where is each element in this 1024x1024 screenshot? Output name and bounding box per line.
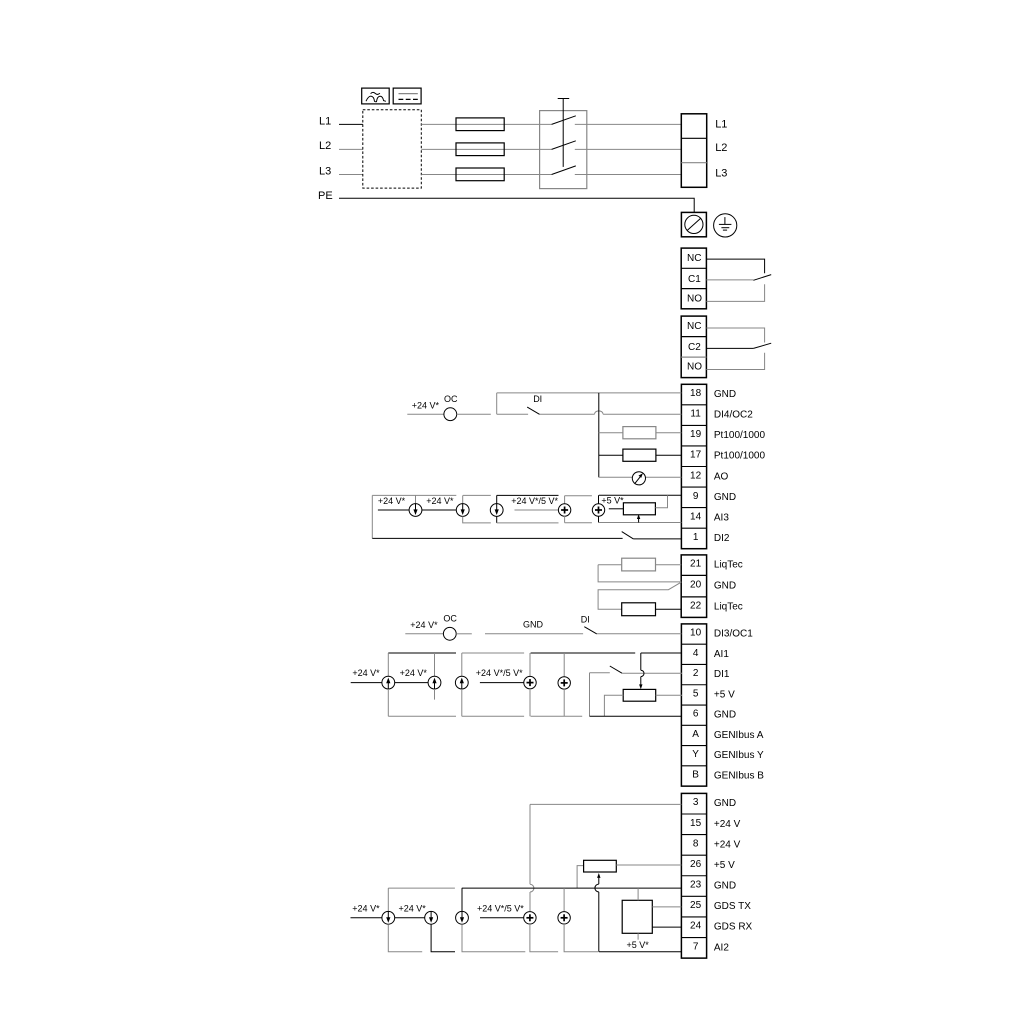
svg-text:11: 11 — [690, 409, 701, 420]
svg-text:14: 14 — [690, 511, 702, 522]
svg-text:1: 1 — [693, 532, 699, 543]
svg-text:19: 19 — [690, 429, 702, 440]
svg-text:GND: GND — [523, 620, 544, 630]
svg-text:Y: Y — [692, 749, 699, 760]
svg-text:4: 4 — [693, 648, 699, 659]
svg-text:17: 17 — [690, 450, 702, 461]
svg-text:3: 3 — [693, 797, 699, 808]
svg-text:+24 V*: +24 V* — [352, 668, 380, 678]
svg-text:7: 7 — [693, 941, 699, 952]
svg-text:26: 26 — [690, 859, 702, 870]
svg-text:5: 5 — [693, 688, 699, 699]
svg-text:GENIbus B: GENIbus B — [714, 771, 764, 782]
svg-text:NC: NC — [687, 253, 701, 264]
svg-text:L1: L1 — [715, 118, 727, 130]
svg-text:+5 V: +5 V — [714, 689, 735, 700]
svg-text:DI3/OC1: DI3/OC1 — [714, 629, 753, 640]
svg-text:OC: OC — [444, 394, 458, 404]
svg-text:+24 V*: +24 V* — [412, 400, 440, 410]
svg-text:22: 22 — [690, 601, 702, 612]
svg-text:L2: L2 — [715, 142, 727, 154]
svg-text:20: 20 — [690, 580, 702, 591]
svg-text:GND: GND — [714, 881, 736, 892]
svg-text:GDS RX: GDS RX — [714, 922, 753, 933]
svg-text:DI1: DI1 — [714, 669, 730, 680]
svg-text:15: 15 — [690, 818, 702, 829]
svg-text:LiqTec: LiqTec — [714, 560, 743, 571]
svg-text:Pt100/1000: Pt100/1000 — [714, 451, 766, 462]
svg-text:+5 V*: +5 V* — [601, 495, 624, 505]
svg-text:+5 V*: +5 V* — [627, 940, 650, 950]
svg-text:GND: GND — [714, 710, 736, 721]
svg-text:10: 10 — [690, 628, 702, 639]
svg-text:12: 12 — [690, 470, 702, 481]
svg-text:21: 21 — [690, 559, 702, 570]
svg-text:NO: NO — [687, 362, 702, 373]
svg-text:B: B — [692, 770, 699, 781]
svg-text:GND: GND — [714, 389, 736, 400]
svg-text:AI2: AI2 — [714, 942, 729, 953]
svg-text:+24 V*: +24 V* — [399, 903, 427, 913]
svg-text:+24 V*: +24 V* — [426, 496, 454, 506]
svg-text:DI4/OC2: DI4/OC2 — [714, 410, 753, 421]
svg-text:GND: GND — [714, 581, 736, 592]
svg-text:+24 V*: +24 V* — [352, 903, 380, 913]
svg-text:8: 8 — [693, 838, 699, 849]
svg-text:C1: C1 — [688, 274, 701, 285]
svg-text:DI2: DI2 — [714, 533, 730, 544]
svg-text:GENIbus A: GENIbus A — [714, 730, 764, 741]
svg-text:+24 V: +24 V — [714, 819, 741, 830]
svg-text:L3: L3 — [319, 166, 331, 178]
svg-text:L1: L1 — [319, 116, 331, 128]
svg-text:+5 V: +5 V — [714, 860, 735, 871]
svg-text:AI1: AI1 — [714, 649, 729, 660]
svg-text:GND: GND — [714, 798, 736, 809]
svg-text:25: 25 — [690, 900, 702, 911]
svg-text:DI: DI — [533, 394, 542, 404]
svg-text:+24 V*/5 V*: +24 V*/5 V* — [477, 903, 524, 913]
svg-text:+24 V*: +24 V* — [410, 620, 438, 630]
svg-text:C2: C2 — [688, 342, 701, 353]
svg-text:A: A — [692, 729, 699, 740]
svg-text:DI: DI — [581, 615, 590, 625]
svg-text:23: 23 — [690, 880, 702, 891]
svg-text:GDS TX: GDS TX — [714, 901, 751, 912]
svg-text:+24 V*/5 V*: +24 V*/5 V* — [511, 496, 558, 506]
svg-text:Pt100/1000: Pt100/1000 — [714, 430, 766, 441]
svg-text:AI3: AI3 — [714, 512, 729, 523]
svg-text:OC: OC — [443, 614, 457, 624]
svg-text:9: 9 — [693, 491, 699, 502]
svg-text:NO: NO — [687, 294, 702, 305]
svg-text:L2: L2 — [319, 140, 331, 152]
svg-text:+24 V*: +24 V* — [378, 496, 406, 506]
svg-text:18: 18 — [690, 388, 702, 399]
svg-text:24: 24 — [690, 921, 702, 932]
svg-text:GND: GND — [714, 492, 736, 503]
svg-text:+24 V*/5 V*: +24 V*/5 V* — [476, 668, 523, 678]
svg-text:AO: AO — [714, 471, 729, 482]
svg-text:PE: PE — [318, 190, 333, 202]
svg-text:L3: L3 — [715, 168, 727, 180]
svg-text:LiqTec: LiqTec — [714, 602, 743, 613]
svg-text:GENIbus Y: GENIbus Y — [714, 750, 764, 761]
svg-text:2: 2 — [693, 668, 699, 679]
svg-text:+24 V: +24 V — [714, 839, 741, 850]
svg-text:NC: NC — [687, 321, 701, 332]
svg-text:6: 6 — [693, 709, 699, 720]
svg-text:+24 V*: +24 V* — [400, 668, 428, 678]
